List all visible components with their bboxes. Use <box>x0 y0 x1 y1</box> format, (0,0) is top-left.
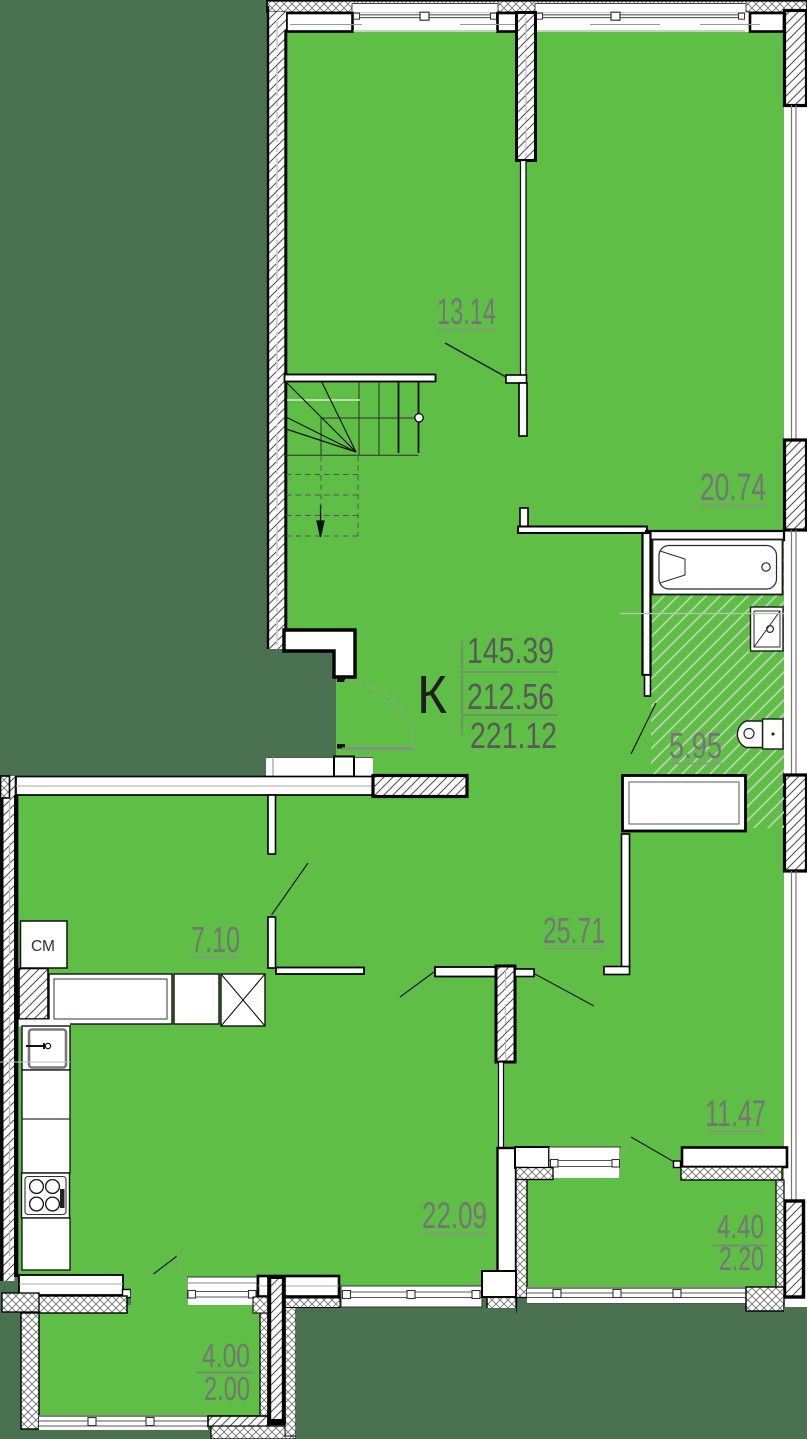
svg-text:13.14: 13.14 <box>437 291 496 332</box>
svg-text:7.10: 7.10 <box>191 919 240 960</box>
svg-text:2.00: 2.00 <box>204 1370 250 1407</box>
svg-text:11.47: 11.47 <box>705 1093 766 1134</box>
svg-text:5.95: 5.95 <box>669 725 722 766</box>
svg-text:20.74: 20.74 <box>700 467 766 509</box>
svg-text:4.00: 4.00 <box>202 1337 250 1374</box>
svg-text:К: К <box>417 665 448 725</box>
svg-text:25.71: 25.71 <box>543 910 605 951</box>
svg-text:221.12: 221.12 <box>470 715 557 756</box>
svg-text:СМ: СМ <box>31 938 55 955</box>
svg-text:2.20: 2.20 <box>719 1240 764 1277</box>
svg-text:22.09: 22.09 <box>422 1195 487 1236</box>
svg-text:145.39: 145.39 <box>467 630 554 671</box>
svg-text:212.56: 212.56 <box>467 676 554 717</box>
